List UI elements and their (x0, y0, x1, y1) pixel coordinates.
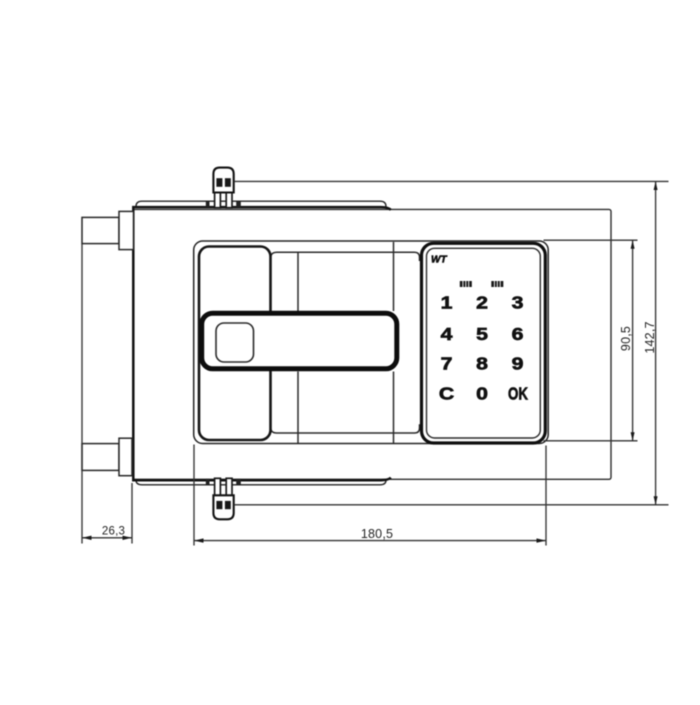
svg-text:7: 7 (441, 354, 453, 374)
svg-text:3: 3 (512, 293, 524, 313)
svg-text:8: 8 (476, 354, 488, 374)
svg-text:26,3: 26,3 (102, 526, 125, 538)
svg-text:4: 4 (441, 324, 453, 344)
svg-text:OK: OK (508, 385, 528, 404)
svg-text:WT: WT (431, 255, 447, 266)
svg-text:180,5: 180,5 (361, 527, 393, 541)
svg-text:C: C (439, 384, 454, 404)
svg-text:9: 9 (512, 354, 524, 374)
svg-text:5: 5 (476, 324, 488, 344)
svg-text:0: 0 (476, 384, 488, 404)
svg-text:6: 6 (512, 324, 524, 344)
svg-text:2: 2 (476, 293, 488, 313)
svg-text:142,7: 142,7 (643, 321, 657, 353)
svg-text:90,5: 90,5 (619, 326, 633, 351)
svg-text:1: 1 (441, 293, 453, 313)
